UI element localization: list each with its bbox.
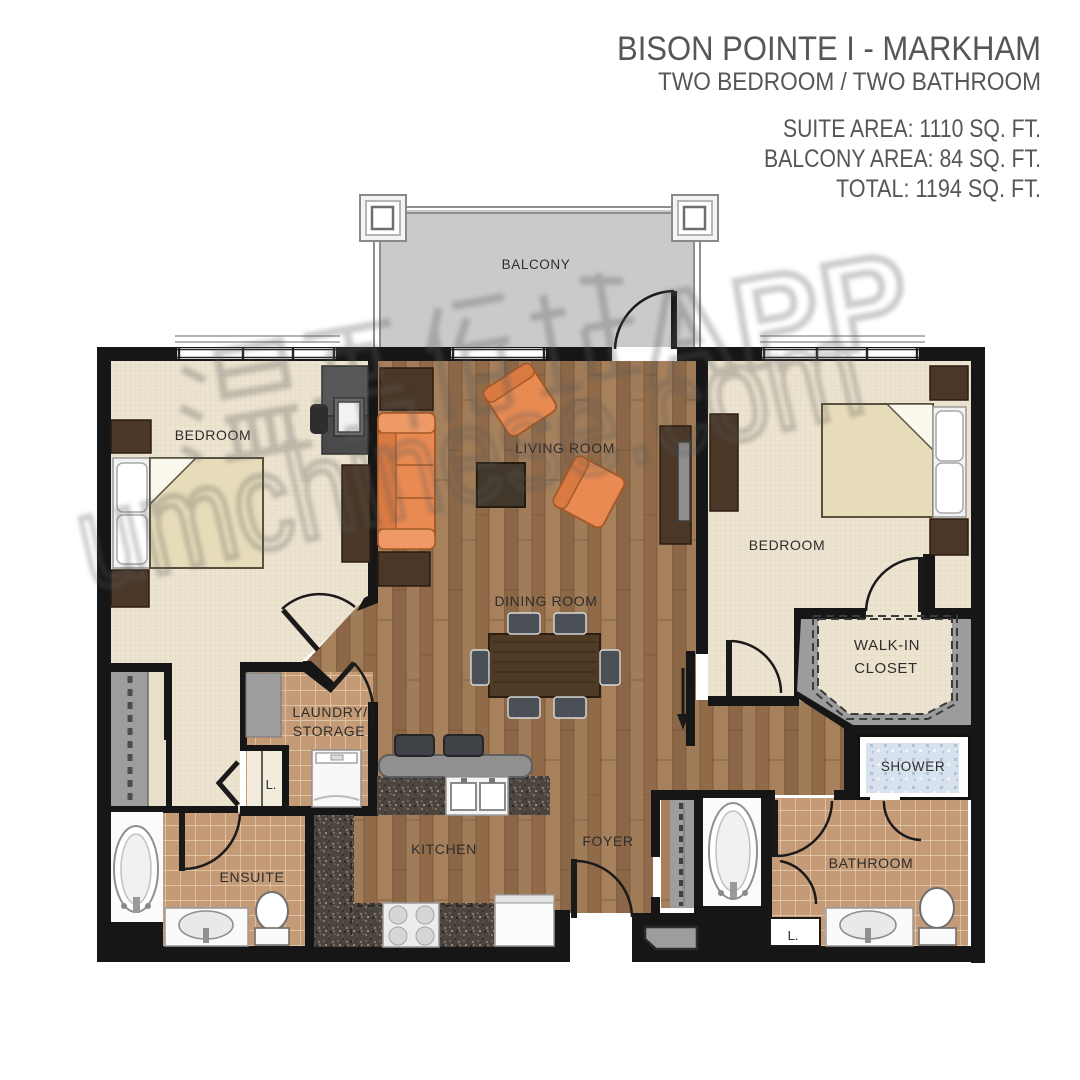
- svg-text:TOTAL: 1194 SQ. FT.: TOTAL: 1194 SQ. FT.: [836, 175, 1041, 203]
- svg-text:BALCONY AREA: 84 SQ. FT.: BALCONY AREA: 84 SQ. FT.: [764, 145, 1041, 173]
- svg-text:SHOWER: SHOWER: [881, 759, 945, 774]
- svg-text:STORAGE: STORAGE: [293, 723, 365, 739]
- svg-text:BEDROOM: BEDROOM: [749, 537, 826, 553]
- svg-text:ENSUITE: ENSUITE: [220, 869, 285, 885]
- svg-text:BALCONY: BALCONY: [502, 257, 571, 272]
- svg-text:L.: L.: [788, 928, 799, 943]
- svg-text:BISON POINTE I - MARKHAM: BISON POINTE I - MARKHAM: [617, 30, 1041, 68]
- svg-text:WALK-IN: WALK-IN: [854, 637, 920, 654]
- svg-text:FOYER: FOYER: [582, 833, 633, 849]
- svg-text:TWO BEDROOM / TWO BATHROOM: TWO BEDROOM / TWO BATHROOM: [658, 68, 1041, 96]
- svg-text:LAUNDRY/: LAUNDRY/: [292, 704, 367, 720]
- svg-text:SUITE AREA: 1110 SQ. FT.: SUITE AREA: 1110 SQ. FT.: [783, 115, 1041, 143]
- svg-text:BATHROOM: BATHROOM: [829, 855, 914, 871]
- svg-text:L.: L.: [266, 777, 277, 792]
- svg-text:DINING ROOM: DINING ROOM: [494, 593, 597, 609]
- svg-text:CLOSET: CLOSET: [854, 660, 918, 677]
- svg-text:KITCHEN: KITCHEN: [411, 841, 477, 857]
